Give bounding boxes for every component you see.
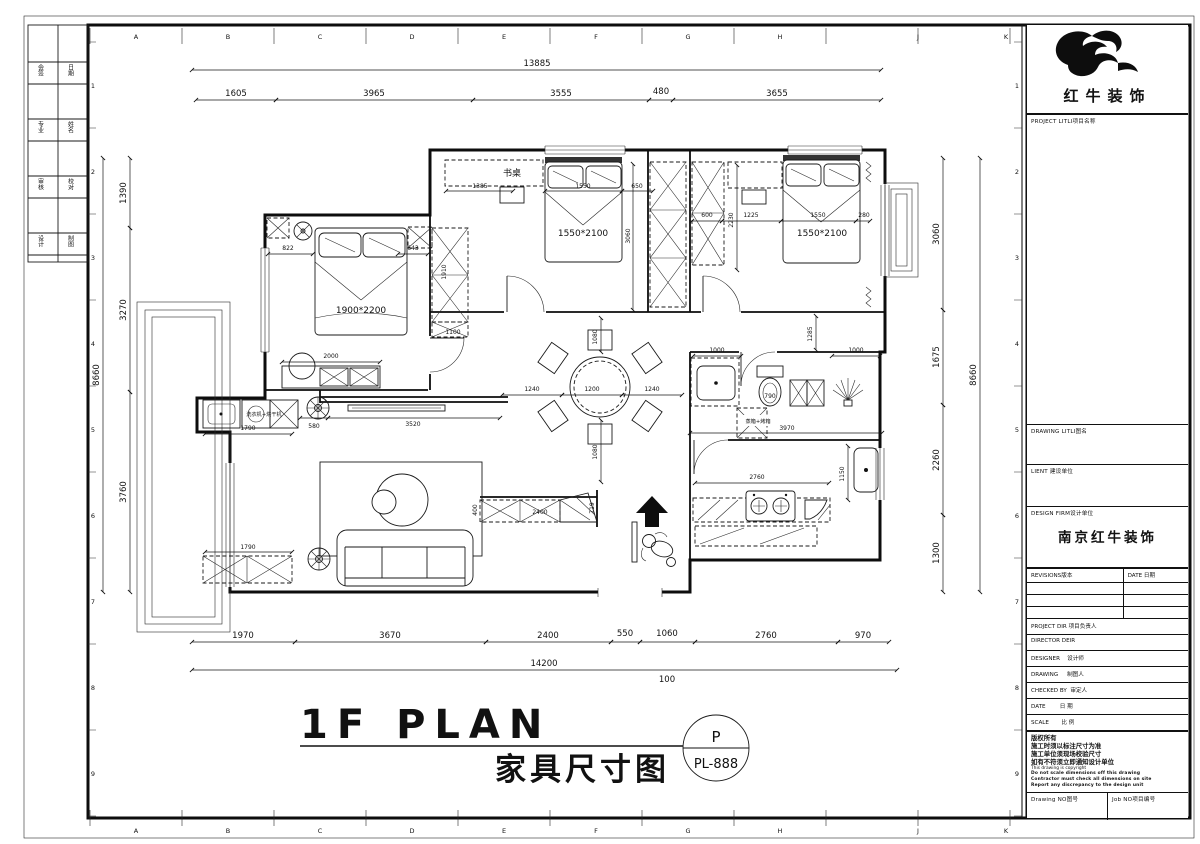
dim-label: 1550 xyxy=(575,183,590,190)
oven-label: 蒸箱+烤箱 xyxy=(745,417,770,425)
project-title-cell: PROJECT LITLI项目名称 xyxy=(1027,115,1188,425)
dim-label: 1100 xyxy=(445,329,460,336)
plan-title-cn: 家具尺寸图 xyxy=(495,752,670,788)
grid-letter: F xyxy=(594,33,598,41)
dim-label: 2260 xyxy=(932,449,942,471)
dim-label: 8660 xyxy=(92,364,102,386)
kitchen-sink xyxy=(854,448,878,492)
design-firm-name: 南京红牛装饰 xyxy=(1027,526,1188,546)
dim-label: 3060 xyxy=(932,223,942,245)
sheet-number: PL-888 xyxy=(694,757,738,772)
radiator-icon xyxy=(866,287,871,307)
stamp-cell: 姓名 xyxy=(67,120,74,134)
bed-right xyxy=(783,155,860,263)
project-dir-row: PROJECT DIR 项目负责人 xyxy=(1027,619,1188,635)
grid-letter: A xyxy=(134,33,139,41)
person-figure xyxy=(641,533,675,567)
dim-label: 1000 xyxy=(709,347,724,354)
dim-label: 2760 xyxy=(755,631,777,641)
fan-icon xyxy=(307,397,329,419)
grid-letter: C xyxy=(318,827,323,835)
bed-size-label: 1900*2200 xyxy=(336,306,387,316)
date-row: DATE 日 期 xyxy=(1027,699,1188,715)
stamp-cell: 制图 xyxy=(67,234,74,248)
dim-label: 1390 xyxy=(119,182,129,204)
grid-letter: K xyxy=(1004,33,1009,41)
bed-master xyxy=(315,228,407,335)
dim-label: 1240 xyxy=(644,386,659,393)
drawing-no-label: Drawing NO图号 xyxy=(1027,793,1107,803)
dim-label: 1970 xyxy=(232,631,254,641)
grid-number: 1 xyxy=(1015,82,1019,90)
bathroom xyxy=(691,358,863,406)
grid-letter: E xyxy=(502,827,506,835)
dim-label: 3555 xyxy=(550,89,572,99)
dim-label: 970 xyxy=(855,631,871,641)
drawing-sheet: 会签 日期 专业 姓名 审核 校对 设计 制图 A B C D E F G H … xyxy=(0,0,1200,844)
drawing-title: 1F PLAN 家具尺寸图 P PL-888 xyxy=(300,702,749,788)
dim-label: 1060 xyxy=(656,629,678,639)
dim-label: 1790 xyxy=(240,544,255,551)
revision-date-label: DATE 日期 xyxy=(1124,569,1188,583)
stamp-cell: 校对 xyxy=(67,177,74,190)
grid-letter: A xyxy=(134,827,139,835)
bed-size-label: 1550*2100 xyxy=(797,229,848,239)
entry-arrow-icon xyxy=(636,496,668,527)
checked-by-row: CHECKED BY 审定人 xyxy=(1027,683,1188,699)
grid-letter: H xyxy=(778,33,783,41)
bed-size-label: 1550*2100 xyxy=(558,229,609,239)
dim-label: 3270 xyxy=(119,299,129,321)
wardrobe-hall xyxy=(650,162,686,307)
dim-label: 822 xyxy=(282,245,294,252)
grid-number: 6 xyxy=(1015,512,1019,520)
grid-letter: D xyxy=(409,827,414,835)
grid-number: 6 xyxy=(91,512,95,520)
dim-label: 2760 xyxy=(749,474,764,481)
grid-letter: G xyxy=(685,827,690,835)
dim-label: 1080 xyxy=(592,329,599,344)
dim-label: 1080 xyxy=(592,444,599,459)
grid-letter: H xyxy=(778,827,783,835)
dim-label: 3970 xyxy=(779,425,794,432)
cabinet-bottom-left xyxy=(203,556,292,583)
dim-label: 1300 xyxy=(932,542,942,564)
dim-label: 3670 xyxy=(379,631,401,641)
dim-label: 550 xyxy=(617,629,633,639)
logo-area: 红牛装饰 xyxy=(1027,27,1188,115)
revision-row xyxy=(1027,595,1124,607)
grid-letter: F xyxy=(594,827,598,835)
bed-mid xyxy=(545,157,622,262)
dim-label: 2400 xyxy=(537,631,559,641)
kitchen xyxy=(693,448,878,546)
revision-row xyxy=(1124,583,1188,595)
ceiling-symbol-icon xyxy=(294,222,312,240)
plant-icon xyxy=(833,378,863,406)
dim-label: 3965 xyxy=(363,89,385,99)
director-row: DIRECTOR DEIR xyxy=(1027,635,1188,651)
designer-row: DESIGNER 设计师 xyxy=(1027,651,1188,667)
dim-label: 1285 xyxy=(807,326,814,341)
scale-row: SCALE 比 例 xyxy=(1027,715,1188,731)
grid-number: 8 xyxy=(1015,684,1019,692)
grid-letter: D xyxy=(409,33,414,41)
copyright-line: 施工时须以标注尺寸为准 xyxy=(1031,742,1188,750)
grid-number: 9 xyxy=(91,770,95,778)
dim-label: 13885 xyxy=(523,59,550,69)
dim-label: 100 xyxy=(659,675,675,685)
grid-letter: J xyxy=(916,827,919,835)
job-no-label: Job NO项目编号 xyxy=(1108,793,1188,803)
sheet-letter: P xyxy=(711,728,720,746)
design-firm-label: DESIGN FIRM设计单位 xyxy=(1027,507,1188,517)
grid-letter: K xyxy=(1004,827,1009,835)
balcony-left xyxy=(137,302,230,632)
dim-label: 643 xyxy=(407,245,419,252)
dim-label: 1225 xyxy=(743,212,758,219)
grid-number: 8 xyxy=(91,684,95,692)
grid-number: 5 xyxy=(1015,426,1019,434)
dim-label: 719 xyxy=(589,502,596,514)
dim-label: 1385 xyxy=(472,183,487,190)
copyright-note: 版权所有 施工时须以标注尺寸为准 施工单位须现场校验尺寸 如有不符须立即通知设计… xyxy=(1027,731,1188,793)
dim-label: 3520 xyxy=(405,421,420,428)
grid-number: 3 xyxy=(1015,254,1019,262)
stamp-cell: 专业 xyxy=(37,120,44,133)
desk xyxy=(445,160,543,203)
stamp-cell: 设计 xyxy=(37,234,44,248)
dim-label: 790 xyxy=(764,393,776,400)
grid-number: 5 xyxy=(91,426,95,434)
washer-label: 洗衣机+烘干机 xyxy=(246,410,282,418)
revision-row xyxy=(1124,595,1188,607)
grid-number: 1 xyxy=(91,82,95,90)
grid-letter: B xyxy=(226,33,230,41)
drawing-title-cell: DRAWING LITLI图名 xyxy=(1027,425,1188,465)
dim-label: 1000 xyxy=(848,347,863,354)
dim-label: 2230 xyxy=(728,212,735,227)
stamp-cell: 审核 xyxy=(37,177,44,191)
client-cell: LIENT 建设单位 xyxy=(1027,465,1188,507)
grid-letter: C xyxy=(318,33,323,41)
signature-strip: 会签 日期 专业 姓名 审核 校对 设计 制图 xyxy=(28,25,88,262)
grid-number: 2 xyxy=(91,168,95,176)
revision-row xyxy=(1027,607,1124,619)
dim-label: 2000 xyxy=(323,353,338,360)
copyright-line: 版权所有 xyxy=(1031,734,1188,742)
grid-letter: G xyxy=(685,33,690,41)
radiator-icon xyxy=(866,162,871,182)
dim-label: 1200 xyxy=(584,386,599,393)
dim-label: 480 xyxy=(653,87,669,97)
copyright-line: 施工单位须现场校验尺寸 xyxy=(1031,750,1188,758)
stamp-cell: 会签 xyxy=(37,63,44,76)
revision-row xyxy=(1124,607,1188,619)
dim-label: 3760 xyxy=(119,481,129,503)
tv xyxy=(348,405,445,411)
grid-number: 3 xyxy=(91,254,95,262)
revisions-table: REVISIONS版本 DATE 日期 xyxy=(1027,569,1188,619)
dim-label: 1675 xyxy=(932,346,942,368)
dim-label: 14200 xyxy=(530,659,557,669)
dim-label: 3655 xyxy=(766,89,788,99)
drawing-title-label: DRAWING LITLI图名 xyxy=(1027,425,1188,435)
dim-label: 8660 xyxy=(969,364,979,386)
dim-label: 2400 xyxy=(532,509,547,516)
plan-title-en: 1F PLAN xyxy=(300,702,551,748)
dim-label: 1605 xyxy=(225,89,247,99)
dim-label: 3060 xyxy=(625,228,632,243)
brand-name: 红牛装饰 xyxy=(1027,85,1188,106)
dim-label: 280 xyxy=(858,212,870,219)
grid-number: 4 xyxy=(91,340,95,348)
revision-row xyxy=(1027,583,1124,595)
copyright-bold-line: Report any discrepancy to the design uni… xyxy=(1031,783,1188,789)
dim-label: 1790 xyxy=(240,425,255,432)
grid-number: 9 xyxy=(1015,770,1019,778)
project-title-label: PROJECT LITLI项目名称 xyxy=(1027,115,1188,125)
number-cells: Drawing NO图号 Job NO项目编号 xyxy=(1027,793,1188,820)
drawing-by-row: DRAWING 制图人 xyxy=(1027,667,1188,683)
dim-label: 1550 xyxy=(810,212,825,219)
drawing-no-cell: Drawing NO图号 xyxy=(1027,793,1108,820)
dim-label: 1910 xyxy=(441,264,448,279)
copyright-line: 如有不符须立即通知设计单位 xyxy=(1031,758,1188,766)
toilet xyxy=(757,366,783,406)
job-no-cell: Job NO项目编号 xyxy=(1108,793,1188,820)
desk-label: 书桌 xyxy=(503,167,521,179)
fan-icon xyxy=(308,548,330,570)
grid-letter: E xyxy=(502,33,506,41)
grid-letter: J xyxy=(916,33,919,41)
entry xyxy=(632,496,676,567)
stamp-cell: 日期 xyxy=(67,64,74,77)
grid-number: 4 xyxy=(1015,340,1019,348)
grid-number: 7 xyxy=(1015,598,1019,606)
grid-number: 7 xyxy=(91,598,95,606)
client-label: LIENT 建设单位 xyxy=(1027,465,1188,475)
grid-number: 2 xyxy=(1015,168,1019,176)
dim-label: 580 xyxy=(308,423,320,430)
sofa xyxy=(337,530,473,586)
living-room xyxy=(307,397,482,586)
revisions-label: REVISIONS版本 xyxy=(1027,569,1124,583)
title-block: 红牛装饰 PROJECT LITLI项目名称 DRAWING LITLI图名 L… xyxy=(1026,25,1188,818)
dim-label: 1150 xyxy=(839,466,846,481)
design-firm-cell: DESIGN FIRM设计单位 南京红牛装饰 xyxy=(1027,507,1188,569)
dim-label: 400 xyxy=(472,504,479,516)
bull-logo-icon xyxy=(1038,27,1178,83)
grid-letter: B xyxy=(226,827,230,835)
stove xyxy=(746,491,795,521)
dim-label: 1240 xyxy=(524,386,539,393)
dim-label: 600 xyxy=(701,212,713,219)
